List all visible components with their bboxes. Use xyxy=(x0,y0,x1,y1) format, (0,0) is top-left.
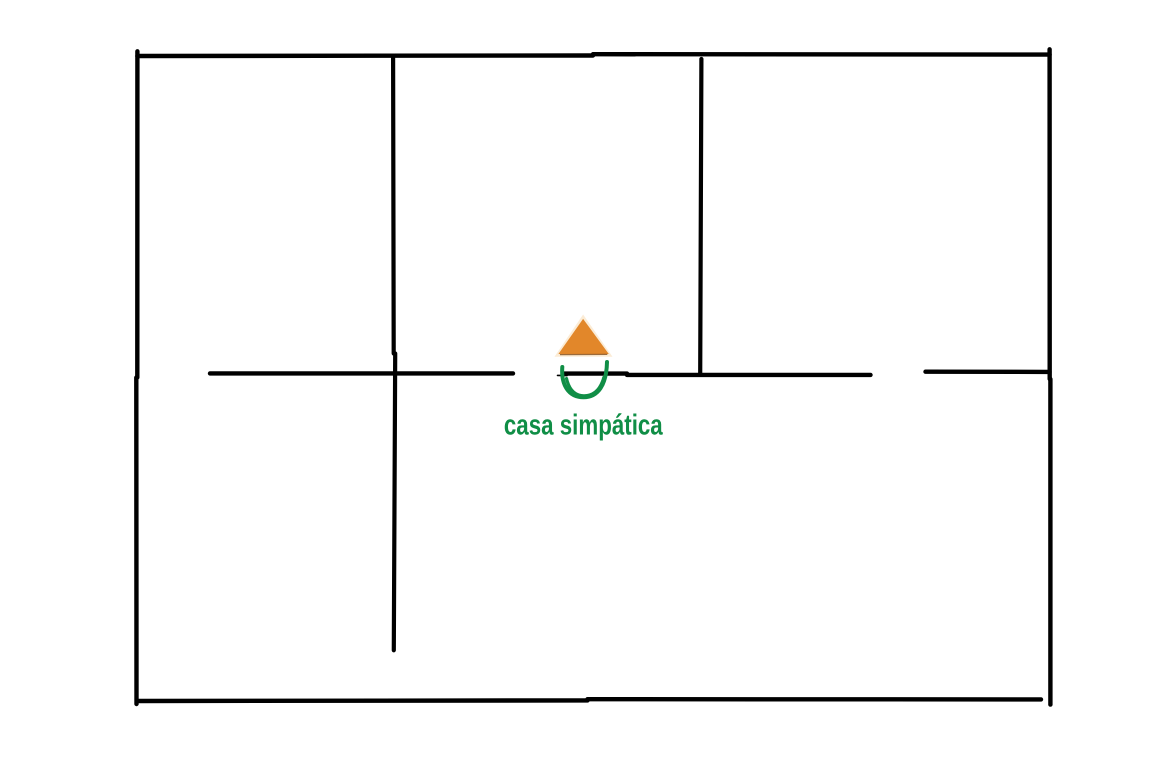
svg-text:casa simpática: casa simpática xyxy=(504,410,663,441)
